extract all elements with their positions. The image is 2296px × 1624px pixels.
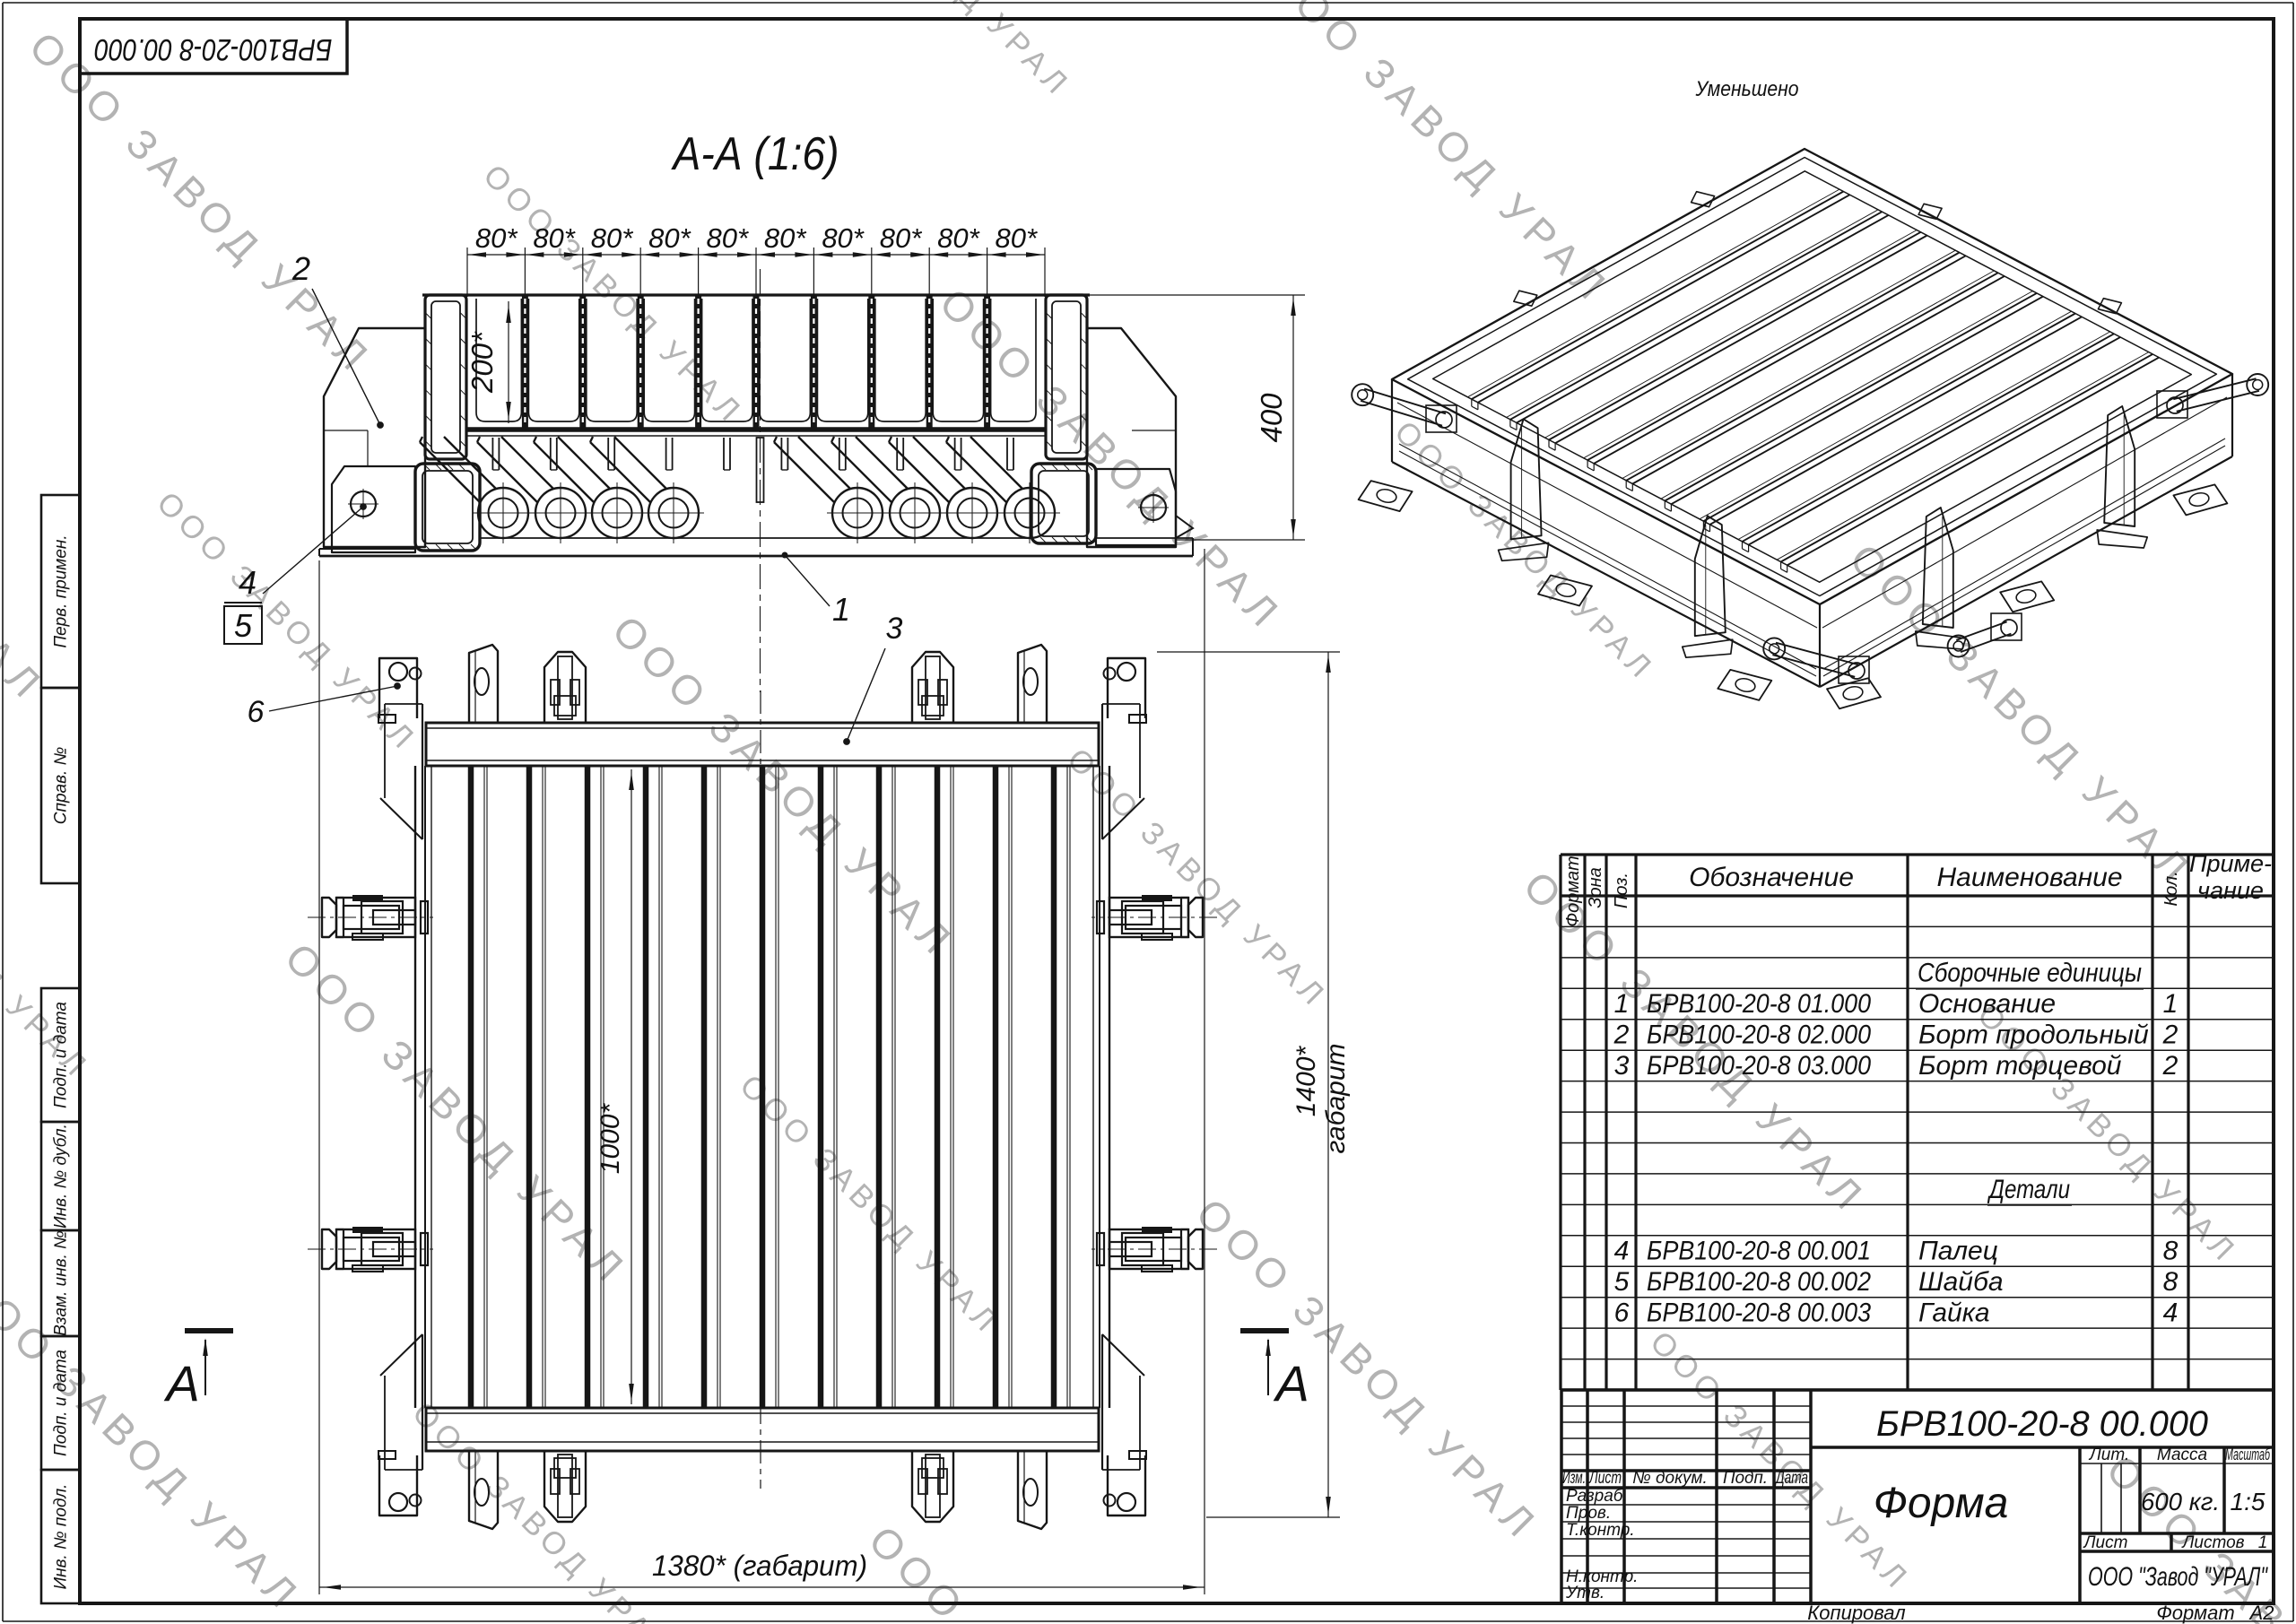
svg-text:Шайба: Шайба [1918,1267,2004,1297]
svg-text:80*: 80* [822,222,864,254]
svg-text:1000*: 1000* [596,1102,625,1174]
svg-text:2: 2 [1613,1020,1630,1050]
svg-text:Борт торцевой: Борт торцевой [1918,1051,2122,1081]
svg-text:Гайка: Гайка [1918,1298,1990,1328]
svg-text:Палец: Палец [1918,1237,1998,1266]
svg-text:3: 3 [886,612,903,646]
svg-text:5: 5 [234,607,253,644]
svg-text:БРВ100-20-8 00.003: БРВ100-20-8 00.003 [1647,1298,1871,1328]
svg-text:5: 5 [1614,1267,1630,1297]
svg-text:Подп. и дата: Подп. и дата [52,1002,71,1108]
svg-text:Лист: Лист [2083,1533,2128,1552]
svg-text:80*: 80* [880,222,922,254]
svg-text:4: 4 [239,564,257,601]
svg-text:2: 2 [291,250,310,287]
svg-text:Масштаб: Масштаб [2225,1446,2271,1463]
svg-text:3: 3 [1614,1051,1630,1081]
svg-text:габарит: габарит [1321,1043,1351,1153]
svg-text:Разраб.: Разраб. [1566,1487,1628,1506]
svg-text:80*: 80* [648,222,691,254]
svg-text:1380* (габарит): 1380* (габарит) [652,1550,867,1582]
svg-text:Уменьшено: Уменьшено [1695,77,1799,101]
svg-text:4: 4 [2163,1298,2179,1328]
svg-text:8: 8 [2163,1237,2179,1266]
svg-text:Дата: Дата [1775,1469,1808,1488]
svg-text:Поз.: Поз. [1612,873,1631,908]
svg-text:Инв. № подл.: Инв. № подл. [52,1484,71,1590]
svg-text:Формат: Формат [2156,1602,2234,1624]
svg-text:Справ. №: Справ. № [52,747,71,824]
svg-text:чание: чание [2197,877,2264,904]
svg-text:№ докум.: № докум. [1632,1469,1708,1488]
svg-text:Пров.: Пров. [1566,1504,1611,1523]
svg-text:80*: 80* [475,222,517,254]
svg-text:Подп.: Подп. [1723,1469,1768,1488]
svg-text:БРВ100-20-8 00.000: БРВ100-20-8 00.000 [1876,1404,2208,1444]
svg-text:Кол.: Кол. [2161,871,2181,906]
svg-text:БРВ100-20-8 00.001: БРВ100-20-8 00.001 [1647,1237,1871,1266]
svg-text:1400*: 1400* [1291,1045,1321,1116]
svg-text:Форма: Форма [1874,1480,2009,1527]
svg-text:А-А (1:6): А-А (1:6) [671,128,839,180]
svg-text:Обозначение: Обозначение [1689,863,1854,892]
svg-text:Детали: Детали [1987,1175,2071,1204]
svg-text:Инв. № дубл.: Инв. № дубл. [52,1124,71,1229]
svg-text:Борт продольный: Борт продольный [1918,1020,2149,1050]
svg-text:600 кг.: 600 кг. [2141,1488,2220,1515]
svg-text:БРВ100-20-8 00.000: БРВ100-20-8 00.000 [94,32,332,66]
svg-text:БРВ100-20-8 01.000: БРВ100-20-8 01.000 [1647,989,1871,1019]
svg-text:6: 6 [1614,1298,1630,1328]
svg-text:Формат: Формат [1563,855,1583,926]
svg-text:Зона: Зона [1586,867,1605,908]
svg-text:80*: 80* [764,222,806,254]
svg-text:Наименование: Наименование [1936,863,2122,892]
svg-text:Копировал: Копировал [1807,1602,1905,1624]
svg-text:1: 1 [2163,989,2179,1019]
svg-text:1: 1 [832,591,850,628]
svg-text:Приме-: Приме- [2189,850,2272,877]
svg-text:А: А [1273,1355,1309,1411]
svg-text:А2: А2 [2248,1602,2274,1624]
svg-text:1: 1 [1614,989,1630,1019]
svg-text:Лист: Лист [1588,1469,1622,1488]
svg-text:200*: 200* [465,331,499,394]
svg-text:400: 400 [1255,393,1288,443]
svg-text:1: 1 [2258,1533,2268,1552]
svg-text:Изм.: Изм. [1562,1469,1586,1488]
svg-text:Сборочные единицы: Сборочные единицы [1918,959,2142,988]
svg-text:6: 6 [248,695,265,729]
svg-text:80*: 80* [996,222,1038,254]
svg-text:1:5: 1:5 [2231,1488,2266,1515]
svg-text:80*: 80* [591,222,633,254]
svg-text:Т.контр.: Т.контр. [1566,1521,1635,1540]
svg-text:Основание: Основание [1918,989,2056,1019]
svg-text:А: А [163,1355,199,1411]
svg-text:БРВ100-20-8 00.002: БРВ100-20-8 00.002 [1647,1267,1871,1297]
svg-text:Масса: Масса [2157,1446,2207,1464]
svg-text:Перв. примен.: Перв. примен. [52,534,71,647]
svg-text:2: 2 [2162,1020,2179,1050]
svg-text:Утв.: Утв. [1565,1584,1605,1602]
svg-text:80*: 80* [937,222,979,254]
svg-text:2: 2 [2162,1051,2179,1081]
svg-text:Листов: Листов [2180,1533,2244,1552]
svg-text:4: 4 [1614,1237,1630,1266]
svg-text:Взам. инв. №: Взам. инв. № [52,1230,71,1336]
svg-text:БРВ100-20-8 02.000: БРВ100-20-8 02.000 [1647,1020,1871,1050]
svg-text:Подп. и дата: Подп. и дата [52,1350,71,1456]
svg-text:Лит.: Лит. [2088,1446,2130,1464]
svg-text:80*: 80* [533,222,575,254]
svg-text:ООО "Завод "УРАЛ": ООО "Завод "УРАЛ" [2088,1562,2268,1592]
svg-text:БРВ100-20-8 03.000: БРВ100-20-8 03.000 [1647,1051,1871,1081]
svg-text:8: 8 [2163,1267,2179,1297]
svg-text:80*: 80* [707,222,749,254]
